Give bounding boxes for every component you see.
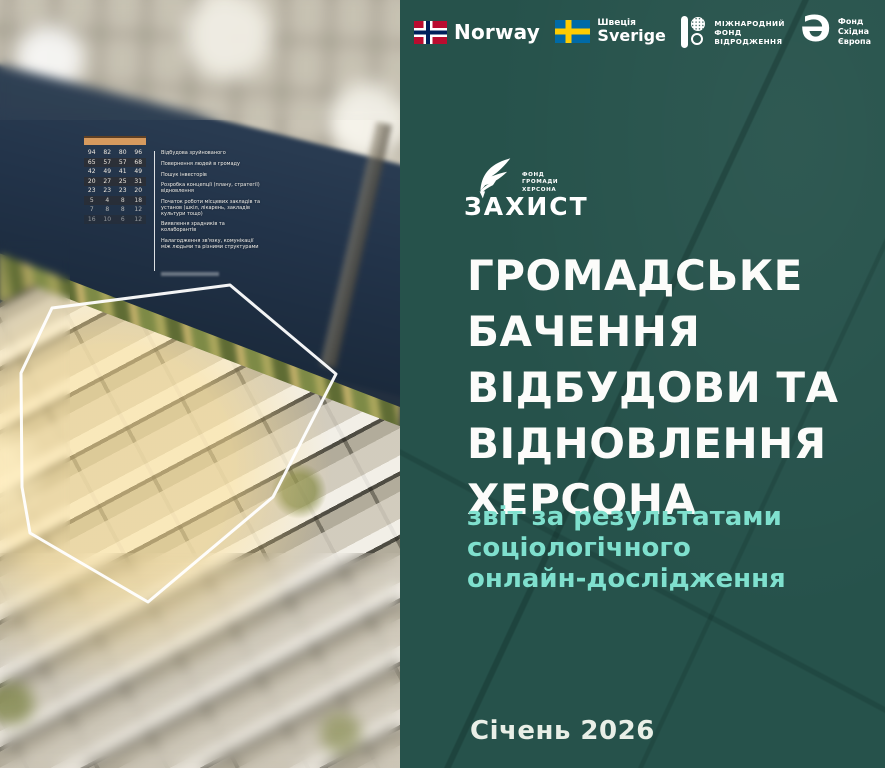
logo-eef: Ә Фонд Східна Європа [800, 17, 871, 47]
norway-flag-icon [414, 21, 447, 44]
map-table-labels: Відбудова зруйнованогоПовернення людей в… [161, 151, 261, 276]
title-line-3: ВІДБУДОВИ ТА [467, 360, 839, 416]
report-title: ГРОМАДСЬКЕ БАЧЕННЯ ВІДБУДОВИ ТА ВІДНОВЛЕ… [467, 248, 839, 528]
sweden-flag-icon [555, 20, 590, 43]
logo-sweden: Швеція Sverige [555, 19, 665, 45]
title-line-2: БАЧЕННЯ [467, 304, 839, 360]
zahyst-small-line-2: ГРОМАДИ [522, 179, 558, 186]
irf-line-1: МІЖНАРОДНИЙ [714, 19, 784, 28]
norway-label: Norway [454, 20, 540, 44]
subtitle-line-1: звіт за результатами [467, 502, 786, 533]
title-line-4: ВІДНОВЛЕННЯ [467, 416, 839, 472]
sweden-label-sv: Sverige [597, 28, 665, 45]
subtitle-line-3: онлайн-дослідження [467, 564, 786, 595]
irf-line-2: ФОНД [714, 28, 784, 37]
chart-header-bar [84, 136, 146, 145]
cover-panel: Norway Швеція Sverige МІЖНАРОДНИЙ ФОНД В… [400, 0, 885, 768]
eef-glyph-icon: Ә [800, 15, 831, 45]
report-date: Січень 2026 [470, 716, 655, 746]
aerial-photo-kherson: 9482809665575768424941492027253123232320… [0, 0, 400, 768]
zahyst-logo: ФОНД ГРОМАДИ ХЕРСОНА ЗАХИСТ [464, 156, 589, 221]
report-subtitle: звіт за результатами соціологічного онла… [467, 502, 786, 595]
zahyst-name: ЗАХИСТ [464, 192, 589, 221]
partner-logos-row: Norway Швеція Sverige МІЖНАРОДНИЙ ФОНД В… [414, 10, 871, 54]
survey-chart-overlay: 9482809665575768424941492027253123232320… [84, 136, 264, 276]
map-table-rows: 9482809665575768424941492027253123232320… [84, 148, 146, 224]
logo-irf: МІЖНАРОДНИЙ ФОНД ВІДРОДЖЕННЯ [681, 16, 784, 48]
irf-icon [681, 16, 707, 48]
irf-line-3: ВІДРОДЖЕННЯ [714, 37, 784, 46]
eef-line-1: Фонд [838, 17, 871, 27]
chart-divider-line [154, 151, 155, 271]
zahyst-small-line-1: ФОНД [522, 172, 558, 179]
logo-norway: Norway [414, 20, 540, 44]
eef-line-2: Східна [838, 27, 871, 37]
district-outline [0, 0, 400, 768]
title-line-1: ГРОМАДСЬКЕ [467, 248, 839, 304]
subtitle-line-2: соціологічного [467, 533, 786, 564]
eef-line-3: Європа [838, 37, 871, 47]
